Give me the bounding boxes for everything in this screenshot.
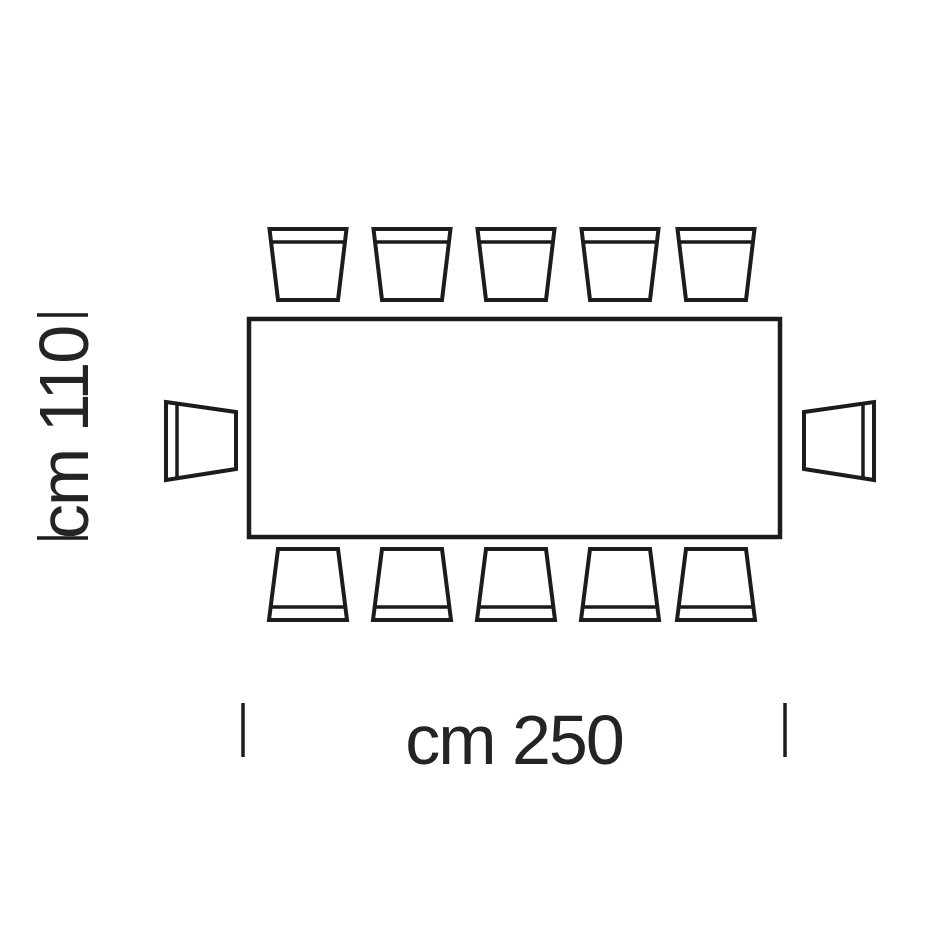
- table-top: [249, 319, 780, 537]
- width-label: cm 250: [405, 701, 623, 779]
- chair-seat-outline: [269, 549, 347, 620]
- chair-seat-outline: [373, 549, 451, 620]
- chair-top: [678, 229, 755, 300]
- chairs-right-end: [804, 402, 874, 480]
- chair-top: [582, 229, 659, 300]
- chair-seat-outline: [478, 229, 555, 300]
- chair-seat-outline: [581, 549, 659, 620]
- chair-bottom: [269, 549, 347, 620]
- chair-bottom: [477, 549, 555, 620]
- width-dimension: cm 250: [243, 701, 785, 779]
- chair-seat-outline: [582, 229, 659, 300]
- chairs-left-end: [166, 402, 236, 480]
- chair-seat-outline: [477, 549, 555, 620]
- chair-top: [478, 229, 555, 300]
- dimension-diagram: cm 110 cm 250: [0, 0, 950, 950]
- chair-seat-outline: [374, 229, 451, 300]
- chair-top: [374, 229, 451, 300]
- chair-bottom: [677, 549, 755, 620]
- chair-seat-outline: [678, 229, 755, 300]
- chairs-bottom-row: [269, 549, 755, 620]
- chair-top: [270, 229, 347, 300]
- chair-right: [804, 402, 874, 480]
- chair-bottom: [581, 549, 659, 620]
- depth-dimension: cm 110: [25, 315, 103, 539]
- chair-seat-outline: [677, 549, 755, 620]
- chairs-top-row: [270, 229, 755, 300]
- depth-label: cm 110: [25, 327, 103, 539]
- chair-seat-outline: [270, 229, 347, 300]
- chair-left: [166, 402, 236, 480]
- chair-bottom: [373, 549, 451, 620]
- diagram-svg: cm 110 cm 250: [0, 0, 950, 950]
